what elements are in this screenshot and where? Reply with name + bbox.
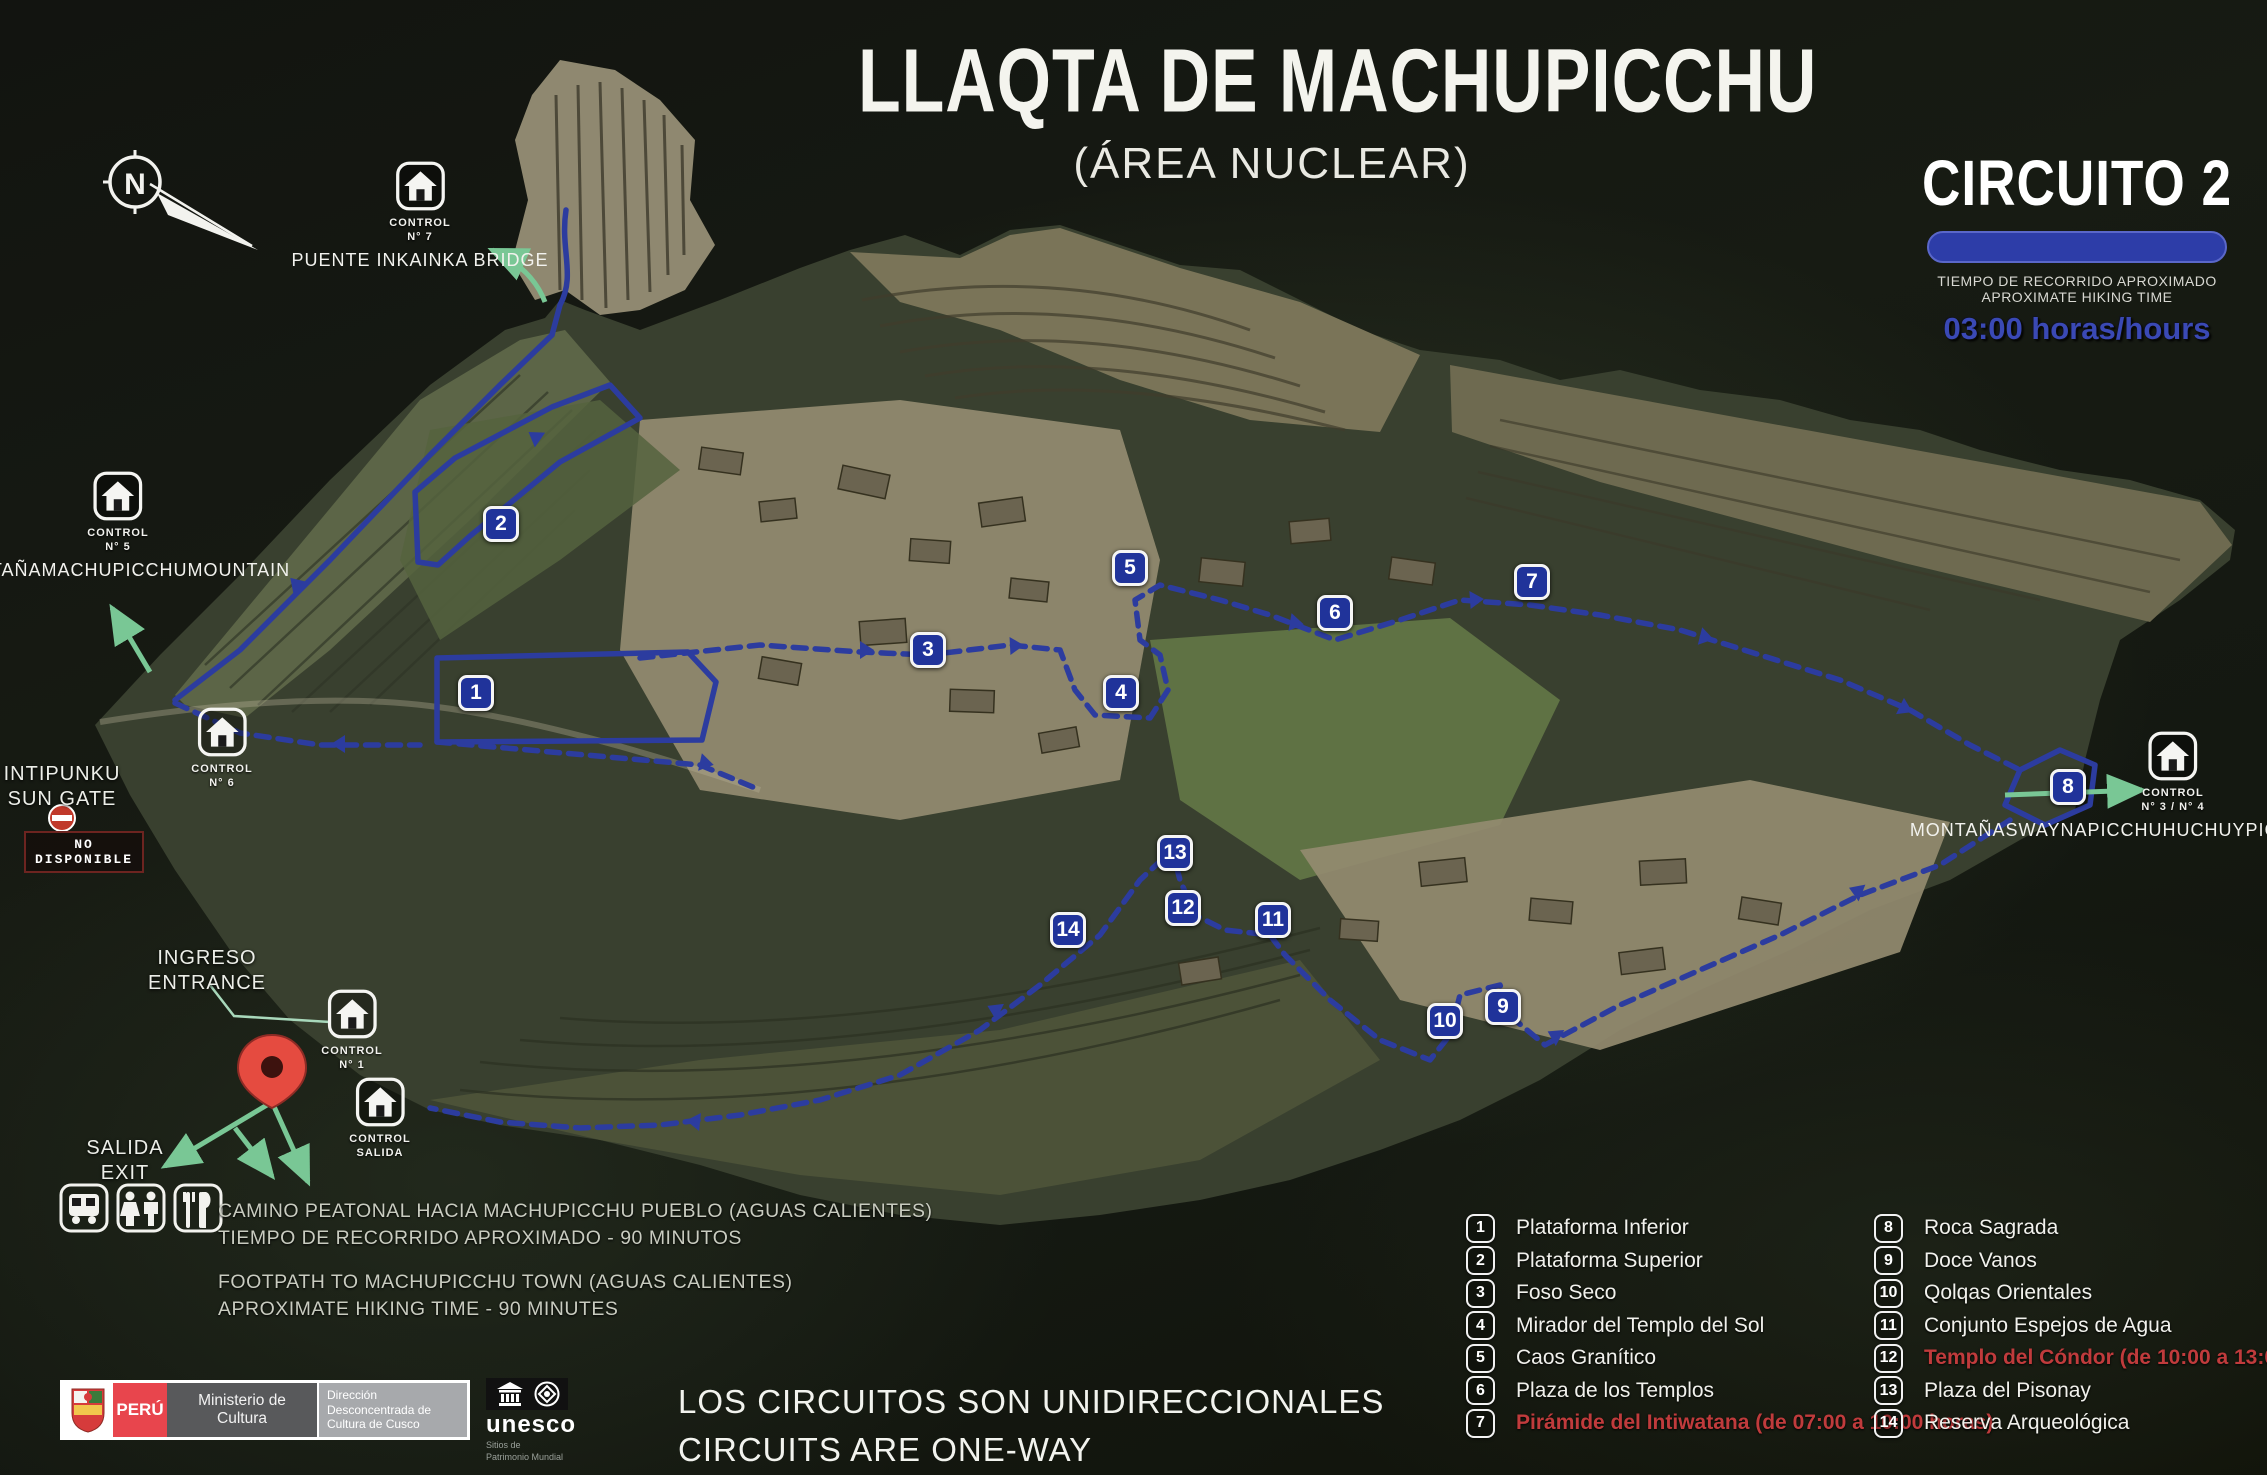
route-stop-marker-14: 14 [1050,912,1086,948]
legend-item-14: 14Reserva Arqueológica [1874,1407,2267,1440]
map-title: LLAQTA DE MACHUPICCHU [858,30,1686,133]
control-caption: CONTROLN° 1 [321,1045,382,1073]
legend-label: Plataforma Superior [1516,1249,1703,1273]
direccion-label: Dirección Desconcentrada de Cultura de C… [319,1383,467,1437]
route-stop-marker-3: 3 [910,632,946,668]
legend-label: Qolqas Orientales [1924,1281,2092,1305]
control-house-icon [2147,730,2199,787]
legend-label: Foso Seco [1516,1281,1616,1305]
legend-number-badge: 6 [1466,1376,1495,1405]
control-place-label: PUENTE INKAINKA BRIDGE [291,249,548,272]
amenity-icons [58,1182,228,1238]
control-caption: CONTROLN° 6 [191,763,252,791]
legend-number-badge: 11 [1874,1311,1903,1340]
route-stop-marker-4: 4 [1103,675,1139,711]
legend-item-12: 12Templo del Cóndor (de 10:00 a 13:00 ho… [1874,1342,2267,1375]
hiking-time-label-es: TIEMPO DE RECORRIDO APROXIMADO [1912,273,2242,289]
legend-number-badge: 4 [1466,1311,1495,1340]
label-ingreso: INGRESO ENTRANCE [148,946,266,996]
map-subtitle: (ÁREA NUCLEAR) [822,139,1722,189]
route-stop-marker-1: 1 [458,675,494,711]
unesco-logo-block: unesco Sitios de Patrimonio Mundial [486,1378,606,1464]
legend-label: Plaza de los Templos [1516,1379,1714,1403]
legend-label: Reserva Arqueológica [1924,1411,2129,1435]
route-stop-marker-11: 11 [1255,902,1291,938]
control-house-icon [92,470,144,527]
route-stop-marker-10: 10 [1427,1003,1463,1039]
legend-label: Templo del Cóndor (de 10:00 a 13:00 hora… [1924,1346,2267,1370]
hiking-time-label-en: APROXIMATE HIKING TIME [1912,289,2242,305]
control-caption: CONTROLN° 7 [291,217,548,245]
control-7: CONTROLN° 7PUENTE INKAINKA BRIDGE [291,160,548,272]
government-logo-strip: PERÚ Ministerio de Cultura Dirección Des… [60,1380,470,1440]
no-disponible-badge: NO DISPONIBLE [24,831,144,873]
legend-label: Doce Vanos [1924,1249,2037,1273]
legend-item-10: 10Qolqas Orientales [1874,1277,2267,1310]
route-stop-marker-12: 12 [1165,890,1201,926]
control-place-label: MONTAÑASWAYNAPICCHUHUCHUYPICCHUMOUNTAINS [1910,819,2267,842]
legend-number-badge: 2 [1466,1246,1495,1275]
route-stop-marker-8: 8 [2050,769,2086,805]
legend-label: Roca Sagrada [1924,1216,2058,1240]
route-stop-marker-6: 6 [1317,595,1353,631]
machupicchu-circuit-map-poster: N LLAQTA DE MACHUPICCHU (ÁREA NUCLEAR) C… [0,0,2267,1475]
label-intipunku: INTIPUNKU SUN GATE [4,762,121,812]
legend-item-9: 9Doce Vanos [1874,1245,2267,1278]
legend-label: Conjunto Espejos de Agua [1924,1314,2172,1338]
legend-item-8: 8Roca Sagrada [1874,1212,2267,1245]
control-1: CONTROLN° 1 [321,988,382,1073]
peru-coat-of-arms [63,1383,113,1437]
route-stop-marker-5: 5 [1112,550,1148,586]
legend-number-badge: 1 [1466,1214,1495,1243]
control-3-4: CONTROLN° 3 / N° 4MONTAÑASWAYNAPICCHUHUC… [1910,730,2267,842]
control-house-icon [394,160,446,217]
label-salida: SALIDA EXIT [86,1136,163,1186]
map-title-block: LLAQTA DE MACHUPICCHU (ÁREA NUCLEAR) [822,38,1722,189]
footpath-note: CAMINO PEATONAL HACIA MACHUPICCHU PUEBLO… [218,1198,933,1323]
circuit-info-panel: CIRCUITO 2 TIEMPO DE RECORRIDO APROXIMAD… [1912,150,2242,347]
compass-north-icon: N [103,150,258,250]
route-stop-marker-13: 13 [1157,835,1193,871]
circuit-color-bar [1927,231,2227,263]
route-stop-marker-2: 2 [483,506,519,542]
control-salida: CONTROLSALIDA [349,1076,410,1161]
control-6: CONTROLN° 6 [191,706,252,791]
unesco-temple-icon [495,1381,525,1407]
unesco-subtitle: Sitios de Patrimonio Mundial [486,1440,606,1463]
hiking-time-value: 03:00 horas/hours [1912,311,2242,347]
legend-number-badge: 13 [1874,1376,1903,1405]
ministerio-label: Ministerio de Cultura [167,1383,317,1437]
route-stop-marker-7: 7 [1514,564,1550,600]
control-caption: CONTROLN° 3 / N° 4 [1910,787,2267,815]
legend-number-badge: 12 [1874,1344,1903,1373]
legend-number-badge: 7 [1466,1409,1495,1438]
legend-number-badge: 5 [1466,1344,1495,1373]
control-caption: CONTROLSALIDA [349,1133,410,1161]
control-5: CONTROLN° 5MONTAÑAMACHUPICCHUMOUNTAIN [0,470,290,582]
route-stop-marker-9: 9 [1485,989,1521,1025]
unesco-wordmark: unesco [486,1412,606,1437]
legend-item-13: 13Plaza del Pisonay [1874,1375,2267,1408]
peru-wordmark: PERÚ [113,1383,167,1437]
legend-item-11: 11Conjunto Espejos de Agua [1874,1310,2267,1343]
circuit-name: CIRCUITO 2 [1920,145,2234,220]
unesco-icons [486,1378,568,1410]
legend-number-badge: 14 [1874,1409,1903,1438]
control-house-icon [326,988,378,1045]
control-house-icon [354,1076,406,1133]
legend-label: Mirador del Templo del Sol [1516,1314,1764,1338]
legend-number-badge: 10 [1874,1279,1903,1308]
control-house-icon [196,706,248,763]
legend-number-badge: 3 [1466,1279,1495,1308]
restaurant-icon [175,1185,221,1231]
legend-number-badge: 8 [1874,1214,1903,1243]
control-caption: CONTROLN° 5 [0,527,290,555]
legend-label: Plataforma Inferior [1516,1216,1689,1240]
legend-number-badge: 9 [1874,1246,1903,1275]
entrance-pin-icon [238,1035,306,1108]
legend-label: Caos Granítico [1516,1346,1656,1370]
control-place-label: MONTAÑAMACHUPICCHUMOUNTAIN [0,559,290,582]
world-heritage-emblem-icon [534,1381,560,1407]
legend-column-right: 8Roca Sagrada9Doce Vanos10Qolqas Orienta… [1874,1212,2267,1440]
one-way-note: LOS CIRCUITOS SON UNIDIRECCIONALES CIRCU… [678,1378,1384,1474]
legend-label: Plaza del Pisonay [1924,1379,2091,1403]
svg-text:N: N [124,168,146,201]
